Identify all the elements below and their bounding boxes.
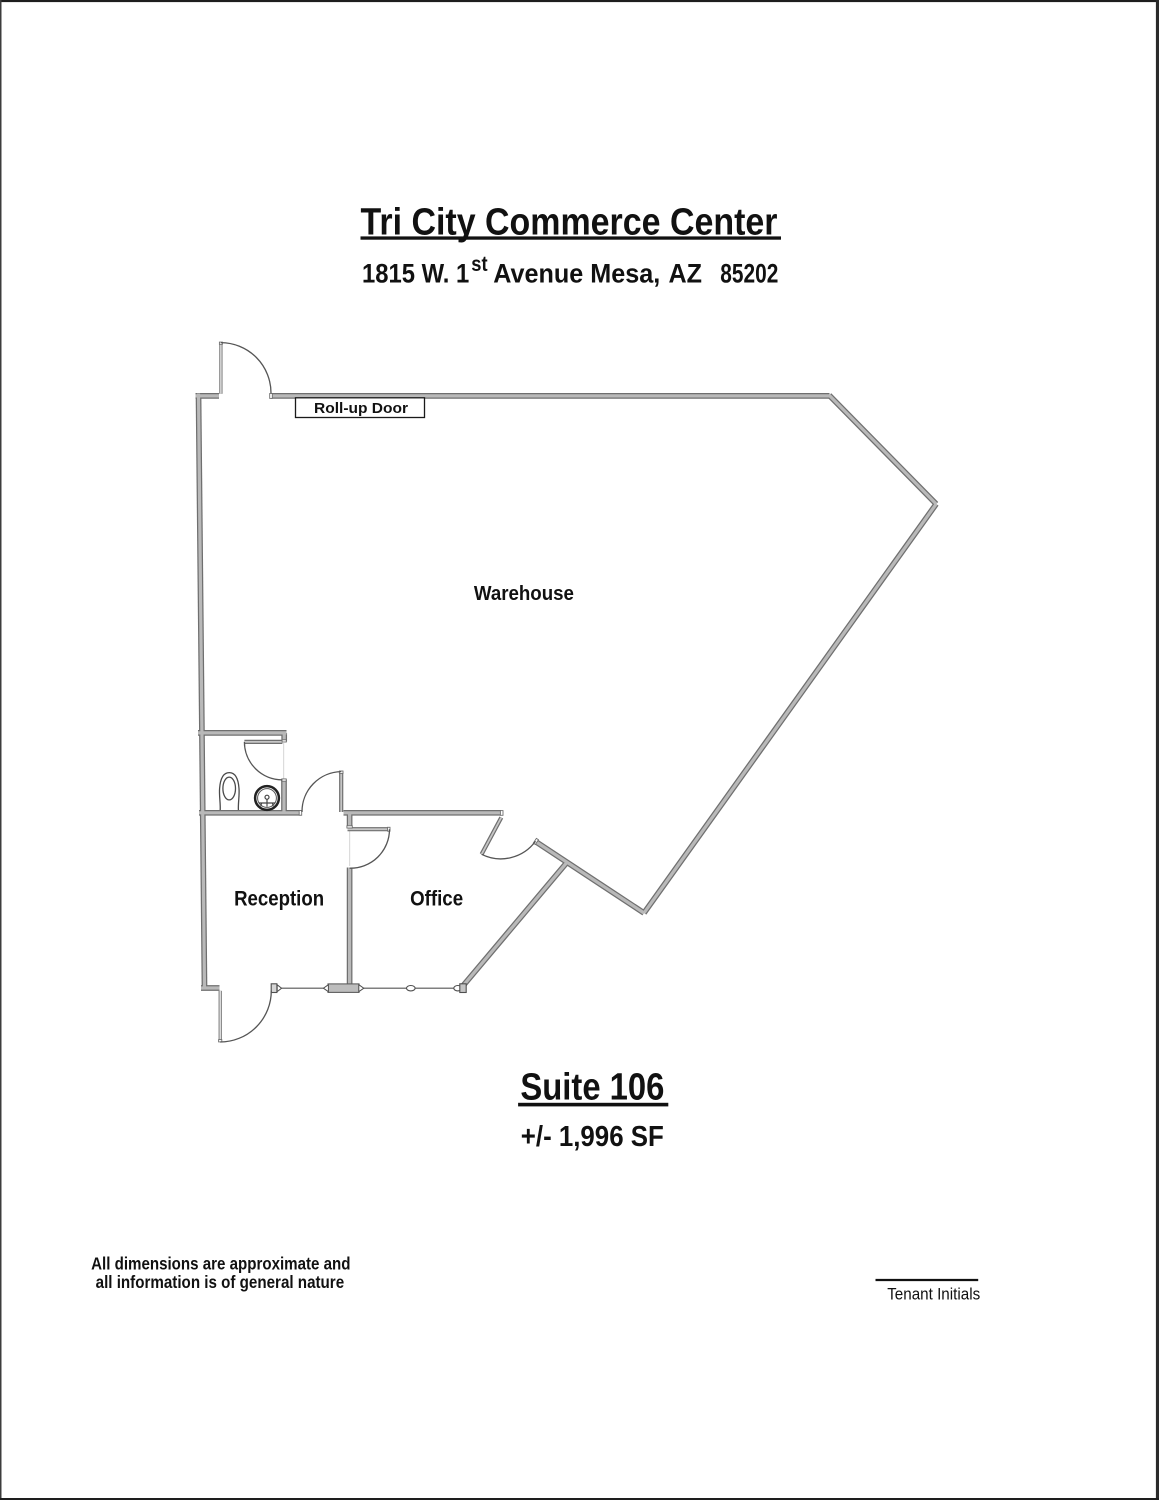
svg-text:AZ: AZ (669, 258, 703, 288)
svg-text:Roll-up Door: Roll-up Door (314, 401, 408, 417)
svg-text:85202: 85202 (720, 258, 778, 288)
svg-text:Avenue: Avenue (493, 258, 583, 288)
svg-text:st: st (471, 253, 487, 276)
svg-text:Tenant Initials: Tenant Initials (887, 1285, 980, 1304)
svg-text:All dimensions are approximate: All dimensions are approximate and (91, 1254, 350, 1274)
svg-text:all information is of general: all information is of general nature (96, 1272, 345, 1292)
svg-text:+/- 1,996 SF: +/- 1,996 SF (521, 1121, 664, 1153)
svg-text:1815 W. 1: 1815 W. 1 (362, 258, 469, 288)
svg-text:Mesa,: Mesa, (590, 258, 660, 288)
svg-text:Reception: Reception (234, 888, 324, 911)
svg-text:Office: Office (410, 888, 463, 911)
svg-text:Suite 106: Suite 106 (520, 1066, 664, 1108)
svg-text:Warehouse: Warehouse (474, 583, 574, 605)
